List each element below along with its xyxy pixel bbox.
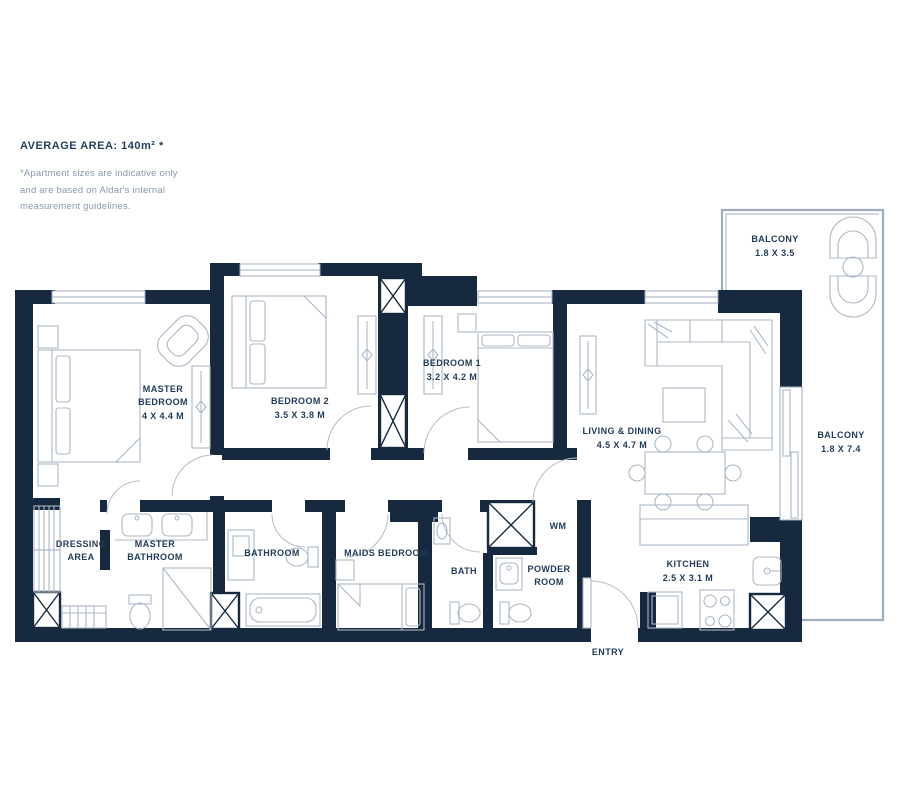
svg-text:BEDROOM 1: BEDROOM 1 (423, 358, 481, 368)
entry-door (583, 578, 638, 628)
double-vanity (115, 512, 207, 540)
shaft-x-box (750, 594, 786, 630)
svg-text:BATHROOM: BATHROOM (244, 548, 300, 558)
armchair (152, 310, 214, 372)
room-label-bathroom: BATHROOM (244, 548, 300, 558)
door-arc-master-bathroom (107, 481, 140, 514)
svg-text:MASTER: MASTER (135, 539, 175, 549)
svg-text:1.8 X 7.4: 1.8 X 7.4 (821, 444, 861, 454)
window (52, 291, 145, 303)
svg-text:BALCONY: BALCONY (817, 430, 864, 440)
svg-text:4.5 X 4.7 M: 4.5 X 4.7 M (597, 440, 647, 450)
svg-text:ROOM: ROOM (534, 577, 564, 587)
floorplan-page: AVERAGE AREA: 140m² * *Apartment sizes a… (0, 0, 900, 800)
svg-text:KITCHEN: KITCHEN (667, 559, 710, 569)
svg-text:4 X 4.4 M: 4 X 4.4 M (142, 411, 184, 421)
door-arc-bath (442, 514, 480, 552)
svg-text:2.5 X 3.1 M: 2.5 X 3.1 M (663, 573, 713, 583)
door-arc-powder-room (533, 458, 577, 502)
room-label-living-dining: LIVING & DINING 4.5 X 4.7 M (582, 426, 661, 450)
svg-text:LIVING & DINING: LIVING & DINING (582, 426, 661, 436)
toilet (129, 595, 151, 629)
svg-text:3.5 X 3.8 M: 3.5 X 3.8 M (275, 410, 325, 420)
room-label-balcony-1: BALCONY 1.8 X 3.5 (751, 234, 798, 258)
bed-2 (232, 296, 326, 388)
room-label-powder-room: POWDER ROOM (528, 564, 571, 587)
shaft-x-box (488, 502, 534, 548)
svg-text:DRESSING: DRESSING (56, 539, 106, 549)
room-label-entry: ENTRY (592, 647, 624, 657)
balcony-lounge-chairs (830, 217, 876, 317)
svg-text:BATH: BATH (451, 566, 477, 576)
window (645, 291, 718, 303)
door-arc-master-bedroom (172, 455, 213, 496)
svg-text:POWDER: POWDER (528, 564, 571, 574)
powder-sink (496, 558, 522, 590)
shaft-x-box (380, 278, 406, 314)
bathtub (246, 594, 320, 626)
room-label-balcony-2: BALCONY 1.8 X 7.4 (817, 430, 864, 454)
sliding-balcony-door (780, 387, 802, 520)
stove (700, 590, 734, 630)
window (240, 264, 320, 276)
maids-bed (336, 560, 424, 630)
shaft-x-box (380, 394, 406, 448)
room-label-bath: BATH (451, 566, 477, 576)
room-label-master-bathroom: MASTER BATHROOM (127, 539, 183, 562)
room-label-master-bedroom: MASTER BEDROOM 4 X 4.4 M (138, 384, 188, 421)
window (478, 291, 552, 303)
shaft-x-box (211, 593, 239, 629)
room-label-wm: WM (550, 521, 567, 531)
svg-text:BEDROOM 2: BEDROOM 2 (271, 396, 329, 406)
wardrobe (358, 316, 376, 394)
svg-text:BATHROOM: BATHROOM (127, 552, 183, 562)
svg-text:MASTER: MASTER (143, 384, 183, 394)
toilet (500, 602, 531, 624)
room-label-maids-bedroom: MAIDS BEDROOM (344, 548, 428, 558)
shower (163, 568, 211, 630)
kitchen-counter (640, 505, 748, 545)
svg-text:AREA: AREA (67, 552, 94, 562)
master-bed (38, 326, 140, 486)
coffee-table (663, 388, 705, 422)
svg-text:3.2 X 4.2 M: 3.2 X 4.2 M (427, 372, 477, 382)
room-label-bedroom-1: BEDROOM 1 3.2 X 4.2 M (423, 358, 481, 382)
svg-text:BALCONY: BALCONY (751, 234, 798, 244)
svg-text:1.8 X 3.5: 1.8 X 3.5 (755, 248, 795, 258)
svg-text:WM: WM (550, 521, 567, 531)
wardrobe (192, 366, 210, 448)
wardrobe (424, 316, 442, 394)
room-label-dressing-area: DRESSING AREA (56, 539, 106, 562)
room-label-bedroom-2: BEDROOM 2 3.5 X 3.8 M (271, 396, 329, 420)
room-label-kitchen: KITCHEN 2.5 X 3.1 M (663, 559, 713, 583)
toilet (450, 602, 480, 624)
door-arc-bathroom (272, 514, 305, 547)
svg-text:MAIDS BEDROOM: MAIDS BEDROOM (344, 548, 428, 558)
shaft-x-box (33, 592, 60, 628)
floor-plan-svg: MASTER BEDROOM 4 X 4.4 M BEDROOM 2 3.5 X… (0, 0, 900, 800)
svg-text:BEDROOM: BEDROOM (138, 397, 188, 407)
svg-text:ENTRY: ENTRY (592, 647, 624, 657)
door-arc-bedroom-2 (327, 406, 371, 450)
door-arc-bedroom-1 (424, 407, 470, 453)
sofa (645, 320, 772, 450)
kitchen-sink (753, 557, 781, 585)
console-table (580, 336, 596, 414)
